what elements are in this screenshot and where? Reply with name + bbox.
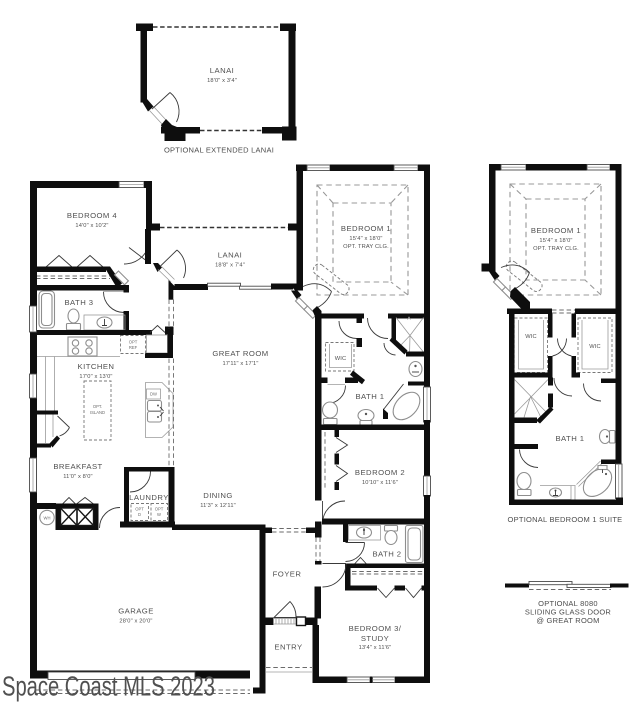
svg-text:OPTIONAL EXTENDED LANAI: OPTIONAL EXTENDED LANAI bbox=[164, 146, 274, 155]
svg-text:KITCHEN: KITCHEN bbox=[78, 362, 115, 371]
svg-text:BEDROOM 4: BEDROOM 4 bbox=[67, 211, 117, 220]
svg-text:LAUNDRY: LAUNDRY bbox=[129, 493, 169, 502]
svg-text:GREAT ROOM: GREAT ROOM bbox=[212, 349, 268, 358]
svg-text:18'0" x 3'4": 18'0" x 3'4" bbox=[207, 78, 237, 84]
svg-text:WIC: WIC bbox=[589, 344, 601, 350]
svg-text:BATH 1: BATH 1 bbox=[555, 434, 584, 443]
svg-text:WIC: WIC bbox=[525, 334, 537, 340]
svg-text:GARAGE: GARAGE bbox=[118, 607, 154, 616]
svg-text:ISLAND: ISLAND bbox=[90, 410, 105, 415]
svg-text:BREAKFAST: BREAKFAST bbox=[53, 462, 102, 471]
svg-text:17'11" x 17'1": 17'11" x 17'1" bbox=[222, 361, 258, 367]
svg-text:DW: DW bbox=[150, 392, 157, 397]
svg-text:LANAI: LANAI bbox=[218, 251, 242, 260]
svg-text:BATH 2: BATH 2 bbox=[372, 550, 401, 559]
svg-text:OPT. TRAY CLG.: OPT. TRAY CLG. bbox=[343, 244, 389, 250]
svg-text:WIC: WIC bbox=[335, 356, 347, 362]
svg-text:REF: REF bbox=[129, 345, 138, 350]
svg-text:BATH 3: BATH 3 bbox=[64, 298, 93, 307]
svg-text:OPTIONAL BEDROOM 1 SUITE: OPTIONAL BEDROOM 1 SUITE bbox=[508, 515, 623, 524]
svg-text:15'4" x 18'0": 15'4" x 18'0" bbox=[349, 236, 382, 242]
svg-text:WH: WH bbox=[44, 516, 51, 521]
svg-text:BEDROOM 1: BEDROOM 1 bbox=[531, 226, 581, 235]
svg-text:STUDY: STUDY bbox=[361, 634, 389, 643]
svg-text:@ GREAT ROOM: @ GREAT ROOM bbox=[536, 616, 599, 625]
svg-text:LANAI: LANAI bbox=[210, 66, 234, 75]
svg-text:ENTRY: ENTRY bbox=[274, 643, 302, 652]
svg-text:10'10" x 11'6": 10'10" x 11'6" bbox=[362, 480, 398, 486]
svg-text:BEDROOM 1: BEDROOM 1 bbox=[341, 224, 391, 233]
svg-text:BEDROOM 2: BEDROOM 2 bbox=[355, 468, 405, 477]
svg-text:BEDROOM 3/: BEDROOM 3/ bbox=[349, 624, 402, 633]
svg-text:28'0" x 20'0": 28'0" x 20'0" bbox=[119, 619, 152, 625]
svg-text:13'4" x 11'6": 13'4" x 11'6" bbox=[359, 645, 392, 651]
svg-text:DINING: DINING bbox=[203, 491, 233, 500]
svg-text:OPT: OPT bbox=[155, 507, 164, 512]
svg-text:W: W bbox=[157, 512, 161, 517]
svg-text:11'0" x 8'0": 11'0" x 8'0" bbox=[63, 474, 92, 480]
svg-text:17'0" x 13'0": 17'0" x 13'0" bbox=[79, 374, 112, 380]
svg-text:OPT. TRAY CLG.: OPT. TRAY CLG. bbox=[533, 246, 579, 252]
svg-text:Space Coast MLS 2023: Space Coast MLS 2023 bbox=[2, 671, 215, 702]
svg-text:OPT: OPT bbox=[129, 340, 138, 345]
svg-text:14'0" x 10'2": 14'0" x 10'2" bbox=[75, 223, 108, 229]
svg-text:FOYER: FOYER bbox=[273, 570, 302, 579]
svg-text:OPT.: OPT. bbox=[93, 404, 102, 409]
svg-text:18'8" x 7'4": 18'8" x 7'4" bbox=[215, 263, 245, 269]
svg-text:11'3" x 12'11": 11'3" x 12'11" bbox=[200, 503, 236, 509]
svg-text:D: D bbox=[138, 512, 141, 517]
svg-text:OPT: OPT bbox=[135, 507, 144, 512]
svg-text:15'4" x 18'0": 15'4" x 18'0" bbox=[539, 238, 572, 244]
svg-text:BATH 1: BATH 1 bbox=[355, 392, 384, 401]
